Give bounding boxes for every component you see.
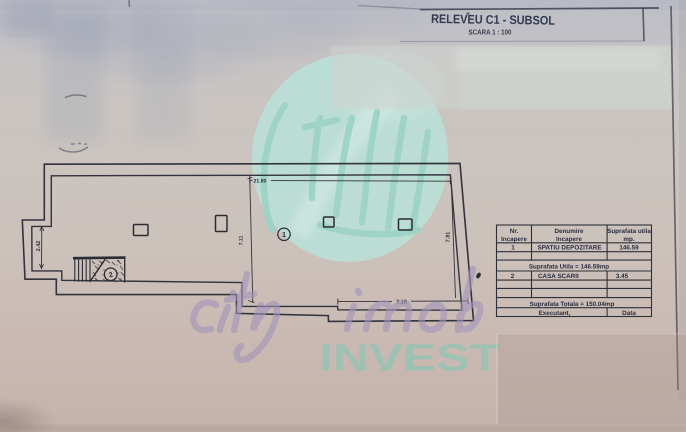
svg-text:7.11: 7.11 bbox=[239, 235, 245, 245]
svg-text:3.45: 3.45 bbox=[616, 273, 629, 280]
svg-text:21.80: 21.80 bbox=[254, 179, 267, 185]
svg-text:Executant,: Executant, bbox=[539, 310, 571, 317]
svg-text:Nr.: Nr. bbox=[510, 228, 519, 235]
svg-text:Suprafata Totala = 150.04mp: Suprafata Totala = 150.04mp bbox=[530, 301, 615, 308]
svg-text:Data: Data bbox=[622, 310, 636, 317]
svg-text:Incapere: Incapere bbox=[556, 236, 582, 243]
svg-text:CASA SCARII: CASA SCARII bbox=[538, 273, 579, 280]
svg-text:INVEST: INVEST bbox=[319, 338, 500, 380]
svg-text:7.81: 7.81 bbox=[446, 232, 452, 243]
svg-text:1: 1 bbox=[511, 245, 515, 252]
svg-text:mp.: mp. bbox=[623, 236, 634, 243]
svg-text:Denumire: Denumire bbox=[554, 228, 584, 235]
svg-text:SCARA 1 : 100: SCARA 1 : 100 bbox=[469, 28, 512, 37]
svg-text:Incapere: Incapere bbox=[501, 236, 527, 243]
svg-text:2.42: 2.42 bbox=[36, 241, 42, 252]
svg-text:1: 1 bbox=[282, 230, 286, 239]
svg-text:146.59: 146.59 bbox=[619, 245, 639, 252]
svg-text:SPATIU DEPOZITARE: SPATIU DEPOZITARE bbox=[538, 245, 602, 252]
svg-text:RELEVEU C1 - SUBSOL: RELEVEU C1 - SUBSOL bbox=[431, 12, 556, 28]
svg-text:2: 2 bbox=[511, 273, 515, 280]
svg-text:Suprafata Utila = 146.59mp: Suprafata Utila = 146.59mp bbox=[529, 263, 609, 270]
svg-text:Suprafata utila: Suprafata utila bbox=[607, 228, 651, 235]
